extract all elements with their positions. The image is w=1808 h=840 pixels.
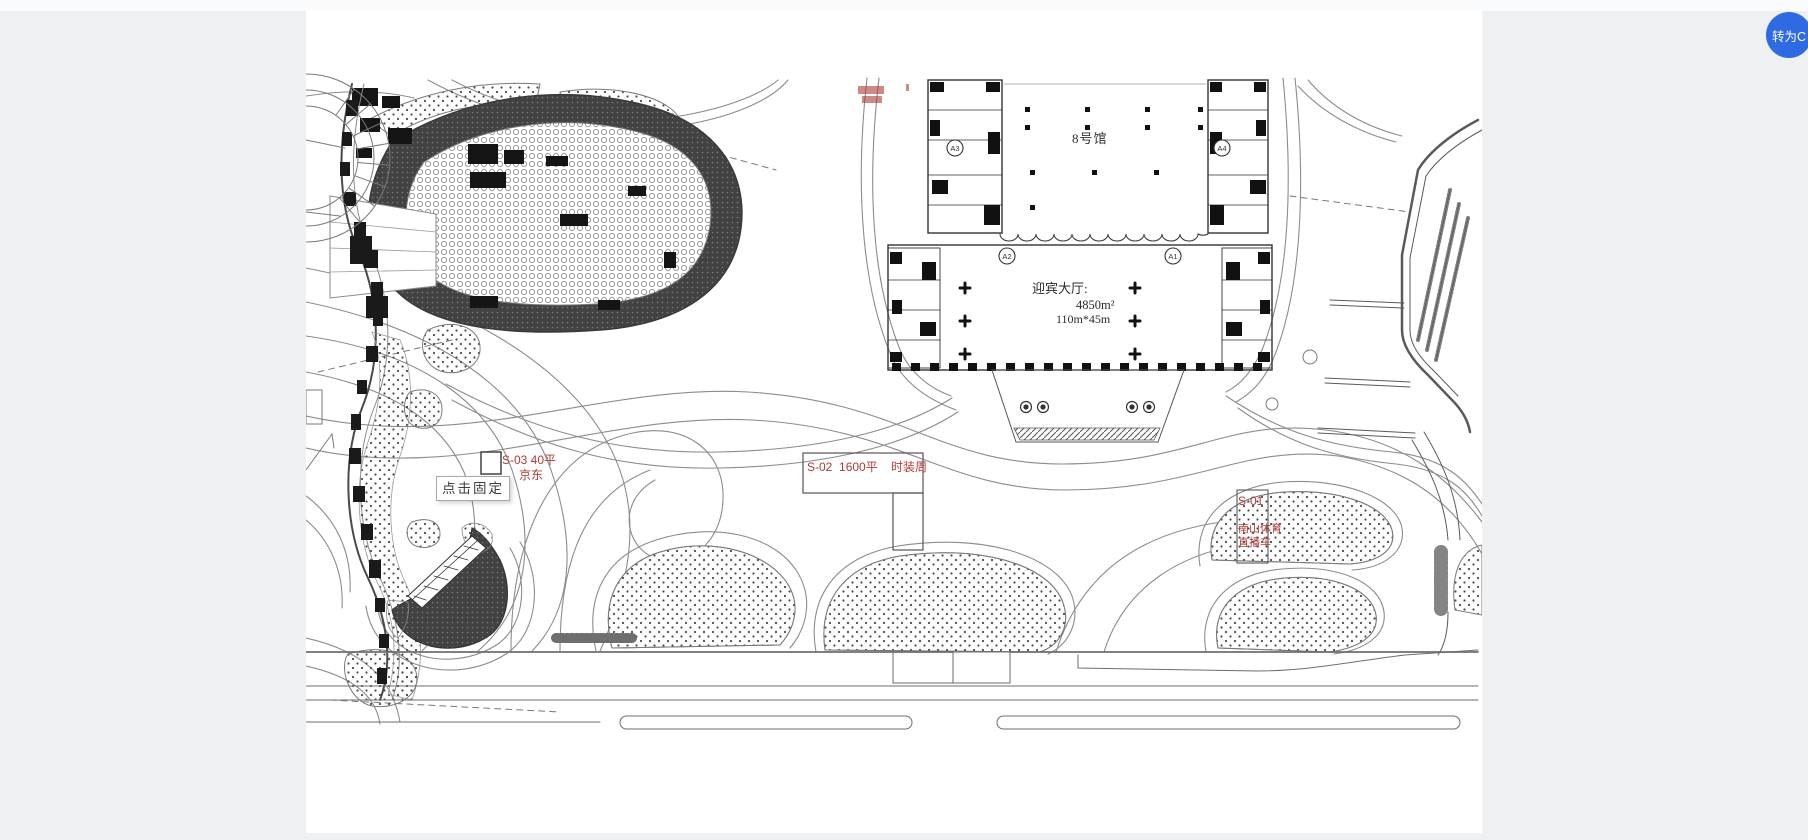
booth-s03-code: S-03 40平 <box>502 454 556 468</box>
welcome-hall-dimensions: 110m*45m <box>1056 313 1132 327</box>
clipped-red-annotation <box>858 84 909 103</box>
booth-s03-marker[interactable] <box>481 452 501 474</box>
booth-s01-code: S-01 <box>1238 495 1282 509</box>
welcome-hall-area: 4850m² <box>1076 298 1132 312</box>
axis-bubble-a3: A3 <box>950 144 959 153</box>
welcome-hall-title: 迎宾大厅: <box>1032 282 1132 297</box>
booth-s01-name1: 南山体育 <box>1238 523 1282 536</box>
booth-s02-label: S-02 1600平 时装周 <box>807 461 927 475</box>
booth-s03-label: S-03 40平 京东 <box>502 454 556 483</box>
axis-bubble-a2: A2 <box>1002 252 1011 261</box>
hall8-label: 8号馆 <box>1072 132 1108 147</box>
axis-bubble-a4: A4 <box>1217 144 1226 153</box>
apron-fixtures <box>1021 402 1155 413</box>
axis-bubble-a1: A1 <box>1168 252 1177 261</box>
booth-s01-name2: 直播车 <box>1238 537 1282 550</box>
booth-s03-name: 京东 <box>519 469 556 483</box>
pin-tooltip[interactable]: 点击固定 <box>436 476 510 501</box>
welcome-hall-label: 迎宾大厅: 4850m² 110m*45m <box>1032 282 1132 327</box>
viewer-stage: A3 A4 A2 A1 <box>0 0 1808 840</box>
site-plan-drawing: A3 A4 A2 A1 <box>0 0 1808 840</box>
convert-fab-button[interactable]: 转为C <box>1766 12 1808 58</box>
booth-s01-label: S-01 南山体育 直播车 <box>1238 495 1282 550</box>
booth-s02-sub-box <box>893 493 923 550</box>
